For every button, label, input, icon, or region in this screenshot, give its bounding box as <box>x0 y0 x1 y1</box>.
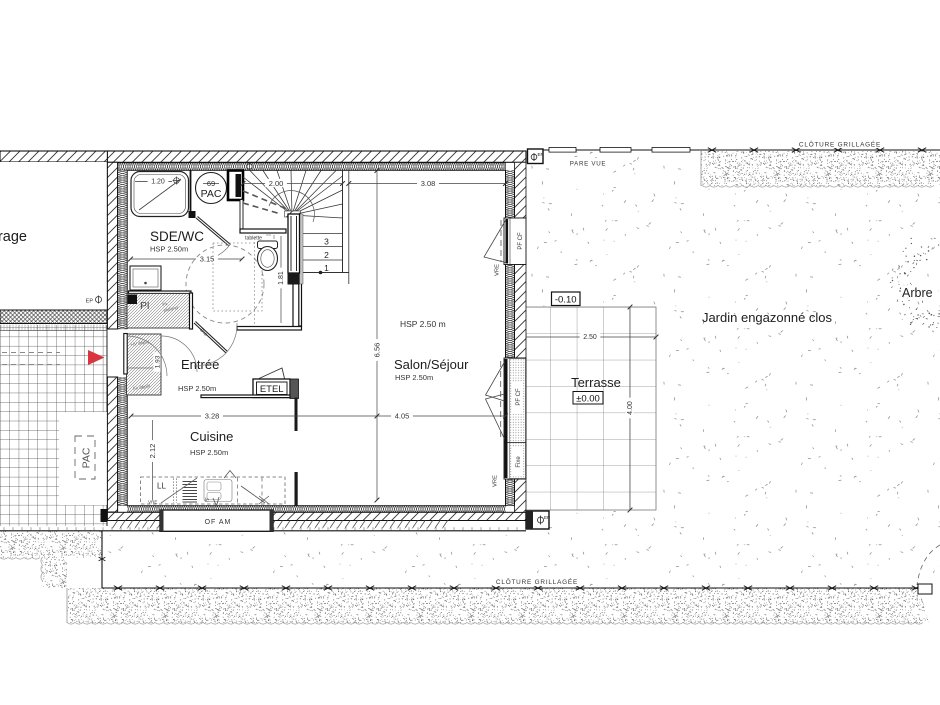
svg-text:HSP 2.50 m: HSP 2.50 m <box>400 319 446 329</box>
svg-text:3.08: 3.08 <box>421 179 436 188</box>
svg-text:Arbre: Arbre <box>902 286 933 300</box>
svg-text:4.05: 4.05 <box>395 411 410 420</box>
svg-text:SDE/WC: SDE/WC <box>150 229 204 244</box>
svg-text:6.56: 6.56 <box>372 343 381 358</box>
svg-text:PARE VUE: PARE VUE <box>570 161 606 168</box>
svg-text:Pl: Pl <box>140 300 149 312</box>
svg-text:VRE: VRE <box>495 264 501 276</box>
svg-text:CLÔTURE GRILLAGÉE: CLÔTURE GRILLAGÉE <box>799 140 881 149</box>
svg-text:HSP 2.50m: HSP 2.50m <box>395 373 433 382</box>
svg-text:ETEL: ETEL <box>260 384 284 395</box>
svg-text:3.15: 3.15 <box>200 254 215 263</box>
svg-text:OF AM: OF AM <box>205 519 232 526</box>
svg-text:EP: EP <box>544 515 550 520</box>
svg-text:EP: EP <box>538 152 544 157</box>
svg-text:±0.00: ±0.00 <box>576 393 600 404</box>
svg-text:Fixe: Fixe <box>516 456 522 468</box>
svg-text:LL: LL <box>157 482 166 491</box>
svg-text:Garage: Garage <box>0 229 27 245</box>
svg-text:2: 2 <box>324 250 329 260</box>
svg-text:-0.10: -0.10 <box>555 294 577 305</box>
svg-text:PAC: PAC <box>201 188 222 200</box>
svg-text:Salon/Séjour: Salon/Séjour <box>394 357 469 372</box>
svg-text:le: le <box>205 498 209 504</box>
svg-text:VRE: VRE <box>148 500 157 505</box>
svg-text:3.28: 3.28 <box>205 411 220 420</box>
svg-text:PF CF: PF CF <box>516 388 522 406</box>
svg-text:HSP 2.50m: HSP 2.50m <box>190 448 228 457</box>
svg-text:HSP 2.50m: HSP 2.50m <box>178 384 216 393</box>
svg-text:2.12: 2.12 <box>148 444 157 459</box>
svg-text:3: 3 <box>324 237 329 247</box>
svg-text:1.81: 1.81 <box>278 271 285 285</box>
svg-text:Terrasse: Terrasse <box>571 375 621 390</box>
svg-text:2.00: 2.00 <box>269 179 284 188</box>
svg-text:Entrée: Entrée <box>181 357 219 372</box>
svg-text:PAC: PAC <box>81 447 93 468</box>
svg-text:1: 1 <box>324 263 329 273</box>
svg-text:CLÔTURE GRILLAGÉE: CLÔTURE GRILLAGÉE <box>496 577 578 586</box>
svg-text:VRE: VRE <box>493 475 499 487</box>
svg-text:2.50: 2.50 <box>583 334 597 341</box>
svg-text:1.93: 1.93 <box>155 355 162 368</box>
svg-text:PF CF: PF CF <box>518 232 524 250</box>
svg-text:4.00: 4.00 <box>627 401 634 415</box>
svg-text:EP: EP <box>86 299 94 305</box>
svg-text:1.20: 1.20 <box>151 179 165 186</box>
svg-text:Jardin engazonné clos: Jardin engazonné clos <box>702 310 833 325</box>
svg-text:HSP 2.50m: HSP 2.50m <box>150 245 188 254</box>
svg-text:Cuisine: Cuisine <box>190 429 233 444</box>
